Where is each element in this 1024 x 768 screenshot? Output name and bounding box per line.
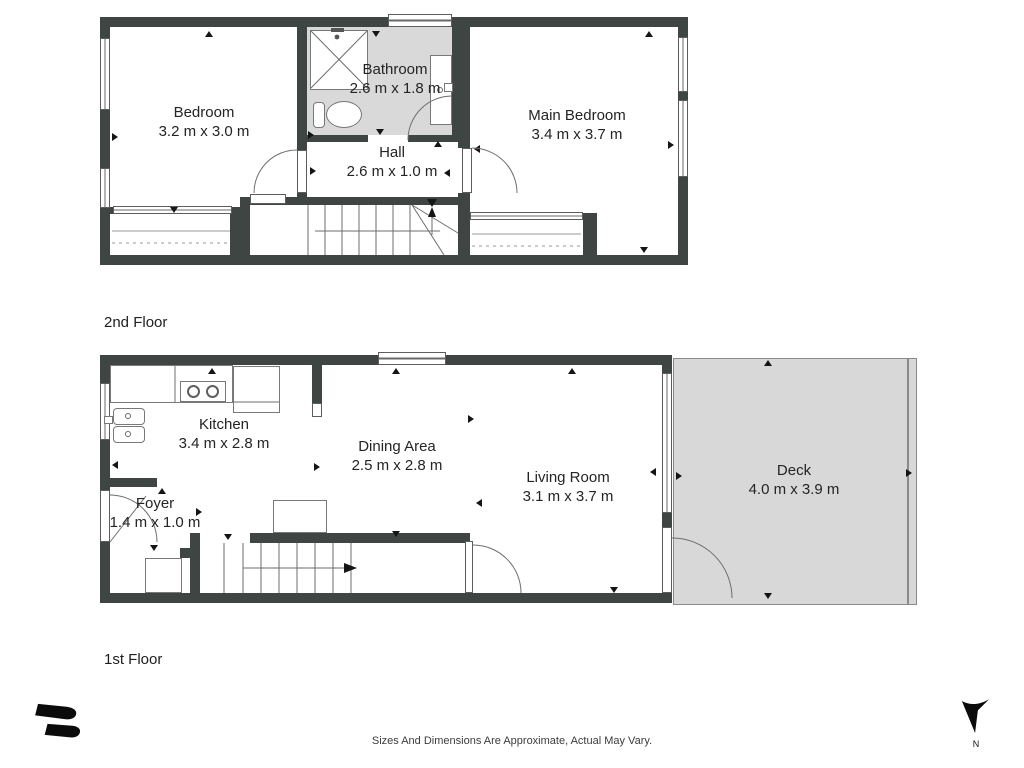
- direction-marker-icon: [392, 531, 400, 537]
- brand-logo-icon: [33, 702, 83, 742]
- floorplan-1st-floor: Kitchen 3.4 m x 2.8 m Dining Area 2.5 m …: [100, 355, 920, 605]
- direction-marker-icon: [764, 360, 772, 366]
- wall: [110, 478, 157, 487]
- direction-marker-icon: [568, 368, 576, 374]
- room-dims: 2.6 m x 1.8 m: [350, 79, 441, 98]
- room-dims: 2.5 m x 2.8 m: [352, 456, 443, 475]
- burner: [187, 385, 200, 398]
- door-stairs: [465, 541, 473, 593]
- front-door: [100, 490, 110, 542]
- wall: [583, 213, 597, 265]
- direction-marker-icon: [314, 463, 320, 471]
- wall: [230, 207, 242, 265]
- room-label-living-room: Living Room 3.1 m x 3.7 m: [523, 468, 614, 506]
- window: [662, 373, 672, 513]
- direction-marker-icon: [640, 247, 648, 253]
- direction-marker-icon: [906, 469, 912, 477]
- direction-marker-icon: [610, 587, 618, 593]
- room-name: Kitchen: [179, 415, 270, 434]
- room-name: Foyer: [110, 494, 201, 513]
- room-dims: 3.4 m x 2.8 m: [179, 434, 270, 453]
- window: [378, 352, 446, 365]
- compass-label: N: [955, 739, 997, 749]
- window: [678, 37, 688, 92]
- direction-marker-icon: [676, 472, 682, 480]
- toilet-tank: [313, 102, 325, 128]
- direction-marker-icon: [645, 31, 653, 37]
- room-label-foyer: Foyer 1.4 m x 1.0 m: [110, 494, 201, 532]
- sink-drain: [125, 431, 131, 437]
- direction-marker-icon: [392, 368, 400, 374]
- wall: [458, 27, 470, 148]
- direction-marker-icon: [308, 131, 314, 139]
- room-dims: 1.4 m x 1.0 m: [110, 513, 201, 532]
- direction-marker-icon: [376, 129, 384, 135]
- direction-marker-icon: [474, 145, 480, 153]
- room-label-bathroom: Bathroom 2.6 m x 1.8 m: [350, 60, 441, 98]
- floor-label-2nd: 2nd Floor: [104, 314, 167, 331]
- room-name: Living Room: [523, 468, 614, 487]
- sink-drain: [125, 413, 131, 419]
- direction-marker-icon: [208, 368, 216, 374]
- room-name: Deck: [749, 461, 840, 480]
- room-label-bedroom: Bedroom 3.2 m x 3.0 m: [159, 103, 250, 141]
- window: [100, 383, 110, 440]
- floorplan-2nd-floor: Bedroom 3.2 m x 3.0 m Bathroom 2.6 m x 1…: [100, 17, 688, 265]
- direction-marker-icon: [444, 169, 450, 177]
- stair-landing: [273, 500, 327, 533]
- window: [470, 212, 583, 220]
- wall: [100, 255, 688, 265]
- direction-marker-icon: [150, 545, 158, 551]
- wall: [100, 593, 672, 603]
- disclaimer-text: Sizes And Dimensions Are Approximate, Ac…: [0, 735, 1024, 747]
- direction-marker-icon: [468, 415, 474, 423]
- wall: [190, 533, 200, 603]
- window: [100, 38, 110, 110]
- faucet: [444, 83, 453, 92]
- foyer-closet: [145, 558, 182, 593]
- toilet-bowl: [326, 101, 362, 128]
- floor-label-1st: 1st Floor: [104, 651, 162, 668]
- window: [678, 100, 688, 177]
- door-kitchen: [312, 403, 322, 417]
- direction-marker-icon: [170, 207, 178, 213]
- room-name: Main Bedroom: [528, 106, 626, 125]
- window: [100, 168, 110, 208]
- compass: N: [955, 698, 997, 754]
- room-name: Bedroom: [159, 103, 250, 122]
- direction-marker-icon: [650, 468, 656, 476]
- wall: [180, 548, 192, 558]
- window: [388, 14, 452, 27]
- direction-marker-icon: [112, 133, 118, 141]
- deck-door: [662, 527, 672, 593]
- direction-marker-icon: [476, 499, 482, 507]
- door-bathroom-threshold: [368, 135, 408, 142]
- room-label-dining-area: Dining Area 2.5 m x 2.8 m: [352, 437, 443, 475]
- room-dims: 3.4 m x 3.7 m: [528, 125, 626, 144]
- room-label-main-bedroom: Main Bedroom 3.4 m x 3.7 m: [528, 106, 626, 144]
- fridge: [233, 366, 280, 413]
- direction-marker-icon: [764, 593, 772, 599]
- room-dims: 3.2 m x 3.0 m: [159, 122, 250, 141]
- direction-marker-icon: [224, 534, 232, 540]
- deck-railing-line: [907, 359, 909, 604]
- room-label-hall: Hall 2.6 m x 1.0 m: [347, 143, 438, 181]
- burner: [206, 385, 219, 398]
- faucet: [104, 416, 113, 424]
- direction-marker-icon: [372, 31, 380, 37]
- direction-marker-icon: [310, 167, 316, 175]
- direction-marker-icon: [112, 461, 118, 469]
- room-dims: 4.0 m x 3.9 m: [749, 480, 840, 499]
- door-bedroom: [297, 150, 307, 193]
- room-label-deck: Deck 4.0 m x 3.9 m: [749, 461, 840, 499]
- room-dims: 3.1 m x 3.7 m: [523, 487, 614, 506]
- floorplan-page: Bedroom 3.2 m x 3.0 m Bathroom 2.6 m x 1…: [0, 0, 1024, 768]
- room-label-kitchen: Kitchen 3.4 m x 2.8 m: [179, 415, 270, 453]
- room-name: Hall: [347, 143, 438, 162]
- north-arrow-icon: [960, 698, 992, 736]
- room-dims: 2.6 m x 1.0 m: [347, 162, 438, 181]
- direction-marker-icon: [668, 141, 674, 149]
- wall: [250, 533, 470, 543]
- room-name: Bathroom: [350, 60, 441, 79]
- door-main-bedroom: [462, 148, 472, 193]
- door-closet: [250, 194, 286, 204]
- room-name: Dining Area: [352, 437, 443, 456]
- direction-marker-icon: [205, 31, 213, 37]
